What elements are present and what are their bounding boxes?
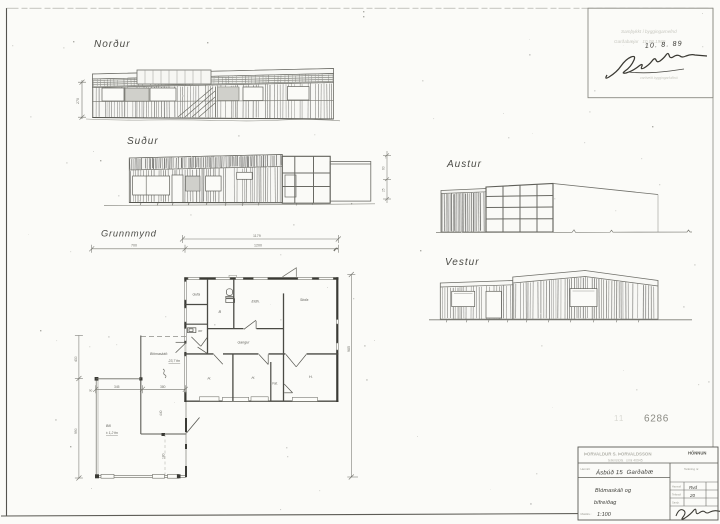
svg-text:± 1,2 fm: ± 1,2 fm [106,431,118,435]
svg-text:Samþykkt í byggingarnefnd: Samþykkt í byggingarnefnd [621,29,677,34]
svg-text:990: 990 [74,428,78,434]
svg-text:Blómaskáli og: Blómaskáli og [595,488,631,494]
svg-text:H.: H. [252,376,256,380]
svg-text:180: 180 [162,453,166,459]
svg-text:Grunnmynd: Grunnmynd [101,229,157,239]
svg-text:varðveitt byggingarfulltrúi: varðveitt byggingarfulltrúi [640,76,678,80]
svg-text:1:100: 1:100 [597,512,612,518]
svg-text:Vestur: Vestur [445,257,480,268]
svg-text:H.: H. [309,375,313,379]
svg-text:Norður: Norður [94,39,131,50]
svg-text:270: 270 [76,98,80,104]
svg-text:Stofa: Stofa [300,298,308,302]
svg-text:25: 25 [382,188,386,192]
svg-text:Bíll: Bíll [106,424,111,428]
svg-text:380: 380 [160,385,166,389]
svg-text:Eldh.: Eldh. [252,300,260,304]
svg-text:Gufa: Gufa [193,293,201,297]
svg-text:Suður: Suður [127,136,159,147]
svg-text:23,7 fm: 23,7 fm [168,359,181,363]
svg-text:345: 345 [114,385,120,389]
svg-text:Samþ.: Samþ. [672,501,680,505]
svg-text:1179: 1179 [253,234,261,238]
svg-text:20: 20 [689,493,696,498]
svg-text:Gangur: Gangur [238,341,251,345]
svg-text:HÖNNUN: HÖNNUN [688,451,706,456]
svg-text:wc: wc [198,329,202,333]
svg-text:Mælikv.:: Mælikv.: [581,512,592,516]
svg-text:11: 11 [614,414,624,423]
svg-text:Blómaskáli:: Blómaskáli: [150,352,168,356]
svg-text:bifreiðag: bifreiðag [594,500,616,506]
svg-text:700: 700 [131,244,137,248]
svg-text:440: 440 [159,410,163,416]
svg-text:430: 430 [74,356,78,362]
svg-text:90: 90 [89,389,93,393]
svg-text:Rvd: Rvd [689,485,697,490]
svg-text:Teikning nr.: Teikning nr. [684,467,699,471]
svg-text:Heimili:: Heimili: [581,467,591,471]
svg-text:Austur: Austur [446,159,482,170]
svg-text:H.: H. [208,377,212,381]
svg-text:Fat.: Fat. [272,382,278,386]
svg-text:6286: 6286 [644,414,669,425]
svg-text:60: 60 [382,166,386,170]
svg-text:1200: 1200 [254,244,262,248]
svg-text:985: 985 [347,346,351,352]
svg-text:ÞORVALDUR S. ÞORVALDSSON: ÞORVALDUR S. ÞORVALDSSON [584,452,652,457]
svg-text:Ásbúð 15 Garðabæ: Ásbúð 15 Garðabæ [595,468,654,476]
svg-text:teiknistofa sími 40945: teiknistofa sími 40945 [608,459,643,463]
